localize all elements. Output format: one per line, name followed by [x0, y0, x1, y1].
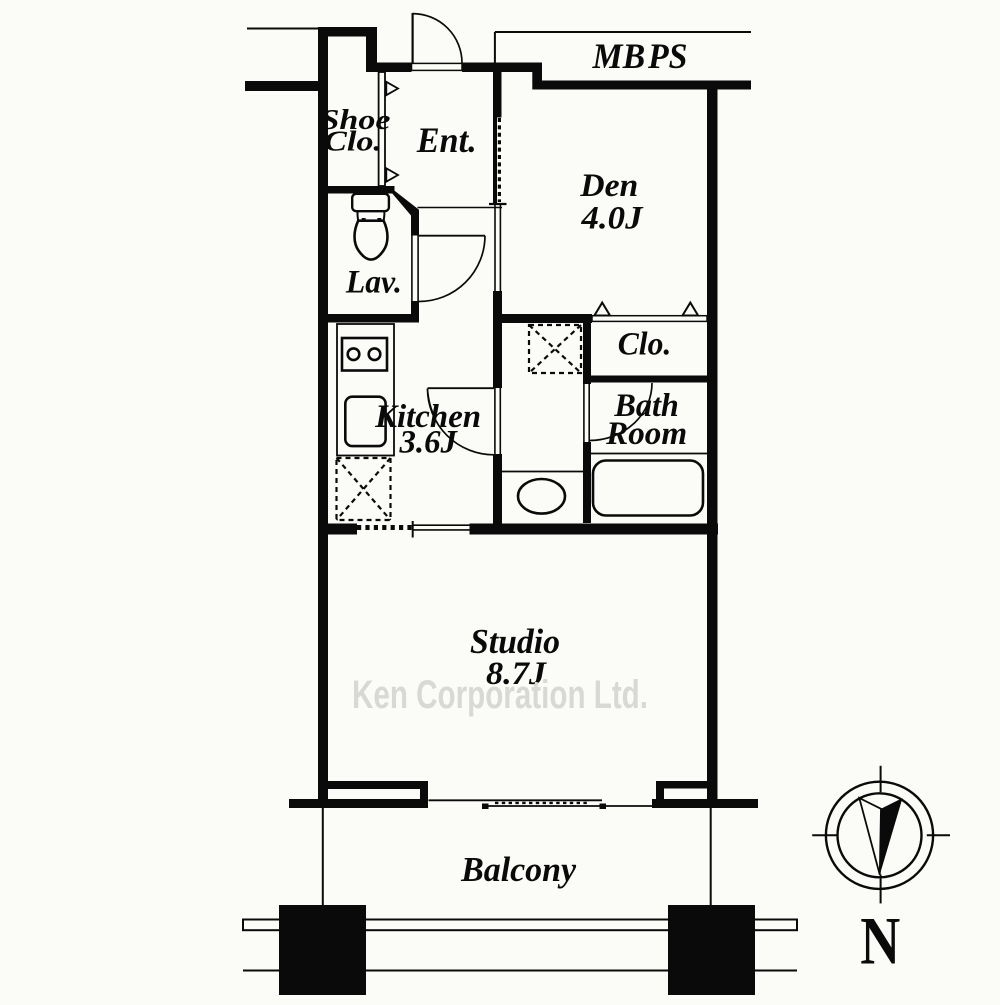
svg-text:3.6J: 3.6J: [398, 425, 458, 461]
svg-text:N: N: [860, 903, 900, 979]
svg-text:Lav.: Lav.: [345, 265, 402, 301]
svg-text:Balcony: Balcony: [460, 850, 576, 889]
svg-text:Ken Corporation Ltd.: Ken Corporation Ltd.: [352, 673, 648, 717]
svg-text:Room: Room: [605, 416, 687, 452]
svg-text:Den: Den: [579, 168, 638, 204]
svg-text:Ent.: Ent.: [416, 120, 477, 160]
svg-text:Clo.: Clo.: [324, 127, 382, 158]
svg-text:MB PS: MB PS: [592, 36, 688, 76]
svg-text:Clo.: Clo.: [618, 327, 672, 363]
svg-text:4.0J: 4.0J: [580, 201, 644, 237]
